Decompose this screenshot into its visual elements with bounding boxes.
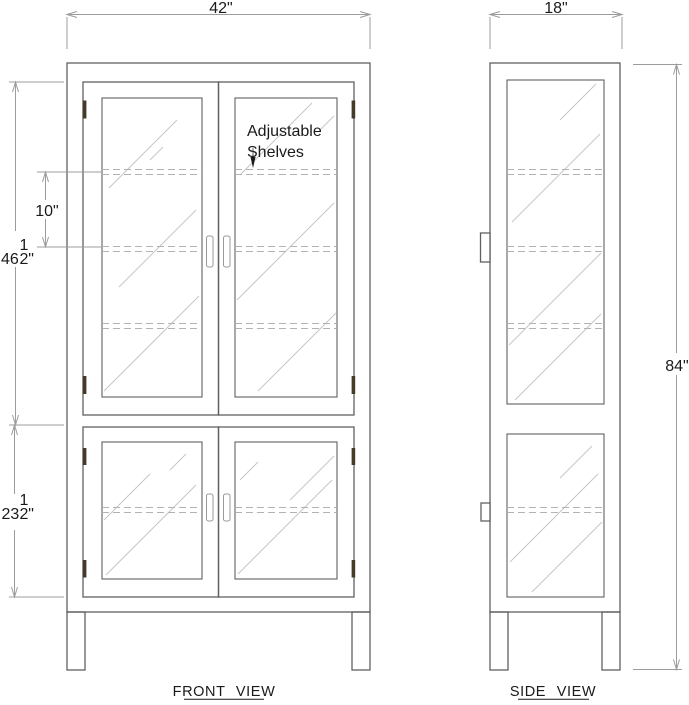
- front-upper-door-left: [83, 82, 219, 415]
- hinge-icon: [352, 448, 356, 465]
- door-handle: [207, 494, 214, 521]
- fraction-whole: 46: [1, 251, 19, 268]
- reflection-line: [510, 474, 598, 562]
- reflection-line: [238, 480, 332, 574]
- front-view-title: FRONT VIEW: [173, 684, 276, 700]
- reflection-line: [515, 314, 601, 400]
- reflection-line: [150, 147, 163, 160]
- side-view: [481, 63, 621, 670]
- reflection-line: [104, 474, 150, 520]
- door-handle: [224, 494, 231, 521]
- reflection-line: [258, 313, 336, 391]
- front-lower-glass-left: [102, 442, 202, 579]
- side-carcass: [490, 63, 620, 612]
- front-upper-glass-right: [235, 98, 337, 397]
- door-handle: [207, 236, 214, 267]
- reflection-line: [170, 454, 186, 470]
- hinge-icon: [83, 560, 87, 578]
- front-view: [67, 63, 370, 670]
- front-leg-left: [67, 612, 85, 670]
- reflection-line: [560, 84, 596, 120]
- side-handle-lower: [481, 503, 490, 521]
- reflection-line: [119, 210, 196, 287]
- fraction-unit: ": [28, 506, 34, 523]
- front-lower-glass-right: [235, 442, 337, 579]
- reflection-line: [290, 456, 334, 500]
- side-glass-reflections: [509, 84, 602, 592]
- reflection-line: [109, 120, 177, 188]
- reflection-line: [509, 253, 601, 345]
- dim-label-overall-height: 84": [665, 358, 688, 375]
- dim-label-front-width: 42": [209, 0, 232, 17]
- front-leg-right: [352, 612, 370, 670]
- dim-label-backgrounds: [0, 200, 689, 530]
- front-hidden-shelf-lines: [102, 170, 337, 513]
- front-cabinet-outline: [67, 63, 370, 670]
- annotation-adjustable: Adjustable: [247, 123, 322, 140]
- fraction-whole: 23: [2, 506, 20, 523]
- dim-label-side-depth: 18": [544, 0, 567, 17]
- reflection-line: [240, 462, 258, 480]
- door-handle: [224, 236, 231, 267]
- side-cabinet-outline: [481, 63, 621, 670]
- side-handle-upper: [481, 233, 491, 262]
- reflection-line: [104, 296, 199, 391]
- hinge-icon: [83, 101, 87, 119]
- hinge-icon: [352, 101, 356, 119]
- fraction-unit: ": [28, 251, 34, 268]
- hinge-icon: [352, 376, 356, 394]
- fraction-denominator: 2: [20, 506, 29, 523]
- drawing-text: 42" 18" 84" 10" 46 1 2 " 23 1 2 " Adjust…: [1, 0, 689, 700]
- hinge-icon: [83, 448, 87, 465]
- hinge-icon: [83, 376, 87, 394]
- hinge-icon: [352, 560, 356, 578]
- technical-drawing-page: 42" 18" 84" 10" 46 1 2 " 23 1 2 " Adjust…: [0, 0, 689, 700]
- side-hidden-shelf-lines: [507, 170, 604, 513]
- fraction-denominator: 2: [20, 251, 29, 268]
- reflection-line: [560, 446, 592, 478]
- dim-label-shelf-spacing: 10": [35, 203, 58, 220]
- side-view-title: SIDE VIEW: [510, 684, 596, 700]
- side-leg-left: [490, 612, 508, 670]
- annotation-shelves: Shelves: [247, 144, 304, 161]
- cabinet-drawing: 42" 18" 84" 10" 46 1 2 " 23 1 2 " Adjust…: [0, 0, 689, 700]
- side-lower-glass: [507, 434, 604, 597]
- front-glass-reflections: [104, 103, 336, 575]
- reflection-line: [512, 134, 600, 222]
- side-upper-glass: [507, 80, 604, 404]
- reflection-line: [106, 485, 196, 575]
- reflection-line: [320, 116, 334, 130]
- side-leg-right: [602, 612, 620, 670]
- reflection-line: [532, 522, 602, 592]
- front-upper-glass-left: [102, 98, 202, 397]
